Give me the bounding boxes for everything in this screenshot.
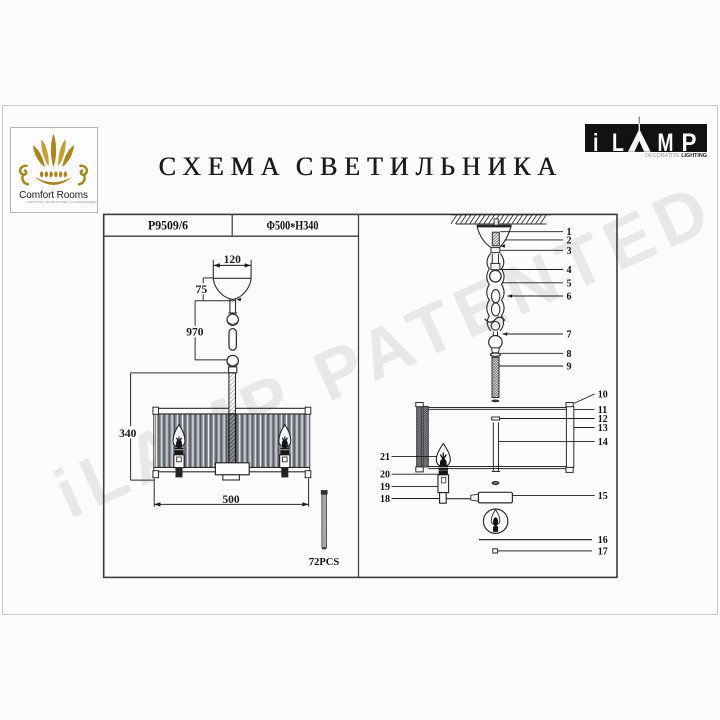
svg-text:6: 6	[567, 292, 572, 303]
svg-text:Φ500*H340: Φ500*H340	[267, 219, 319, 235]
svg-text:20: 20	[380, 470, 390, 481]
svg-text:15: 15	[598, 491, 608, 502]
svg-text:14: 14	[598, 437, 608, 448]
svg-text:5: 5	[567, 278, 572, 289]
svg-text:72PCS: 72PCS	[309, 557, 339, 568]
svg-text:18: 18	[380, 494, 390, 505]
svg-text:500: 500	[222, 494, 240, 506]
svg-text:8: 8	[567, 349, 572, 360]
svg-text:P9509/6: P9509/6	[148, 219, 188, 233]
svg-text:75: 75	[196, 284, 208, 296]
svg-text:21: 21	[380, 452, 390, 463]
svg-text:9: 9	[567, 362, 572, 373]
svg-text:7: 7	[567, 330, 572, 341]
svg-text:970: 970	[186, 327, 204, 339]
svg-text:17: 17	[598, 547, 608, 558]
svg-text:3: 3	[567, 246, 572, 257]
svg-text:4: 4	[567, 265, 572, 276]
svg-text:2: 2	[567, 235, 572, 246]
svg-text:19: 19	[380, 482, 390, 493]
svg-text:340: 340	[119, 428, 137, 440]
svg-text:10: 10	[598, 389, 608, 400]
svg-text:16: 16	[598, 535, 608, 546]
svg-text:13: 13	[598, 423, 608, 434]
svg-text:120: 120	[224, 254, 242, 266]
